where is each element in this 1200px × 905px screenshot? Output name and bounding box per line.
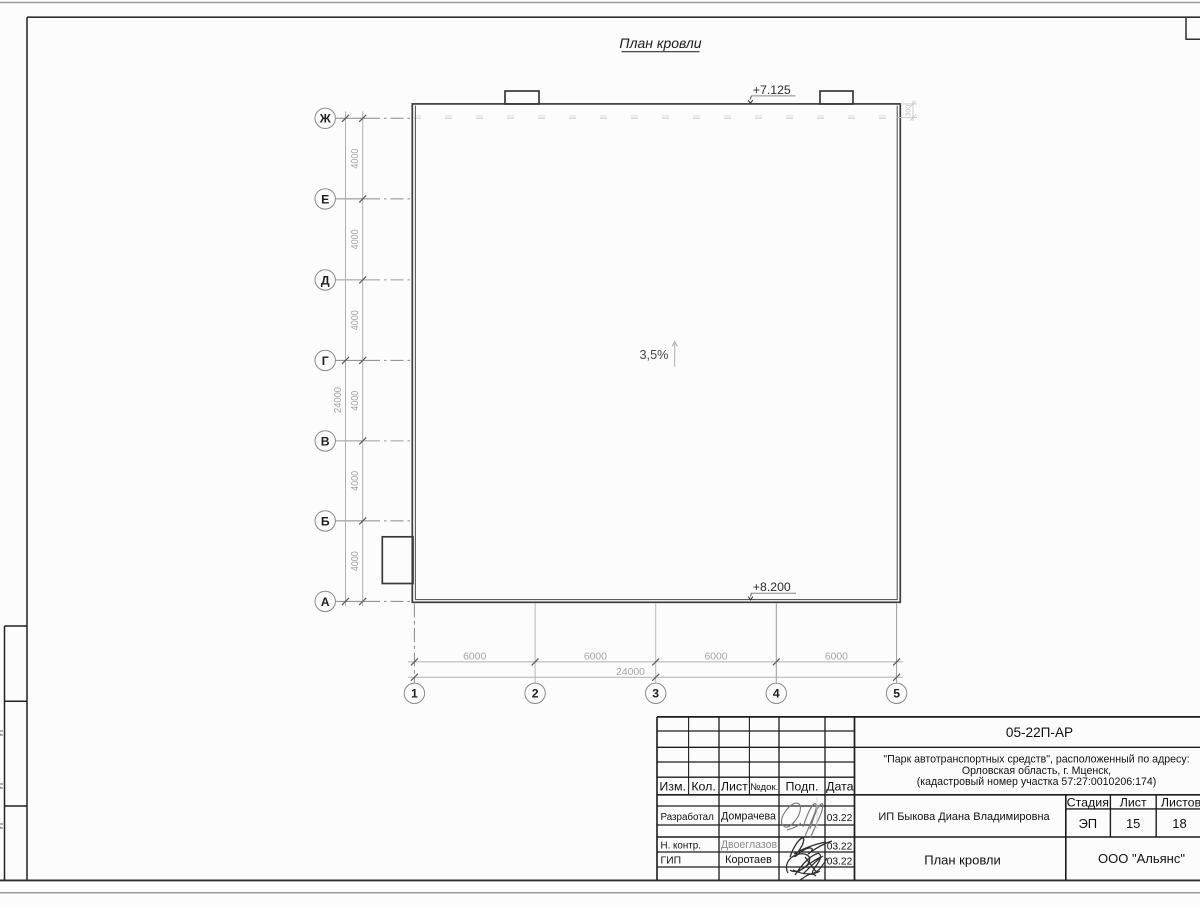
svg-text:2: 2 [532,687,539,701]
svg-text:03.22: 03.22 [827,857,853,868]
svg-text:Домрачева: Домрачева [721,811,776,823]
svg-text:ЭП: ЭП [1078,816,1097,831]
svg-text:ООО "Альянс": ООО "Альянс" [1098,851,1185,866]
svg-text:4: 4 [773,687,780,701]
svg-text:3,5%: 3,5% [640,348,669,362]
svg-text:300: 300 [906,105,913,117]
svg-text:Стадия: Стадия [1067,795,1109,809]
svg-text:05-22П-АР: 05-22П-АР [1006,725,1073,740]
svg-text:+7.125: +7.125 [753,83,791,97]
svg-text:4000: 4000 [350,390,361,410]
svg-text:6000: 6000 [584,651,607,662]
svg-text:Д: Д [321,273,330,287]
svg-text:"Парк автотранспортных средств: "Парк автотранспортных средств", располо… [883,754,1189,766]
svg-text:Лист: Лист [721,779,748,793]
svg-text:А: А [321,595,330,609]
svg-text:Н. контр.: Н. контр. [661,840,701,851]
svg-text:План кровли: План кровли [924,853,1001,868]
svg-text:4000: 4000 [350,229,361,249]
svg-text:План кровли: План кровли [619,35,701,51]
svg-text:Изм.: Изм. [659,779,686,793]
svg-text:Дата: Дата [826,779,854,793]
svg-text:В: В [321,434,330,448]
svg-text:Ж: Ж [319,112,332,126]
svg-text:4000: 4000 [350,471,361,491]
svg-text:5: 5 [893,687,900,701]
svg-text:№док.: №док. [750,782,778,793]
svg-text:24000: 24000 [616,667,645,678]
svg-text:Двоеглазов: Двоеглазов [721,839,778,851]
svg-text:Лист: Лист [1120,795,1147,809]
svg-text:24000: 24000 [333,387,344,413]
svg-text:Листов: Листов [1161,795,1200,809]
svg-text:15: 15 [1126,816,1140,831]
svg-text:18: 18 [1172,816,1186,831]
svg-text:+8.200: +8.200 [753,580,791,594]
svg-text:ИП Быкова Диана Владимировна: ИП Быкова Диана Владимировна [878,811,1050,823]
svg-text:03.22: 03.22 [827,813,853,824]
svg-text:Е: Е [321,192,329,206]
svg-text:Б: Б [321,514,330,528]
svg-text:3: 3 [652,687,659,701]
svg-text:Кол.: Кол. [691,779,716,793]
svg-text:1: 1 [411,687,418,701]
svg-text:Г: Г [322,354,329,368]
svg-text:Орловская область, г. Мценск,: Орловская область, г. Мценск, [962,765,1111,777]
svg-text:Подп.: Подп. [786,779,819,793]
svg-text:(кадастровый номер участка 57:: (кадастровый номер участка 57:27:0010206… [917,776,1157,788]
svg-text:ГИП: ГИП [661,855,682,866]
svg-text:6000: 6000 [463,651,486,662]
svg-text:6000: 6000 [825,651,848,662]
svg-text:4000: 4000 [350,551,361,571]
svg-text:6000: 6000 [704,651,727,662]
svg-text:4000: 4000 [350,148,361,168]
svg-text:Коротаев: Коротаев [725,854,772,866]
svg-text:Разработал: Разработал [661,812,715,823]
svg-text:4000: 4000 [350,310,361,330]
svg-text:03.22: 03.22 [827,842,853,853]
